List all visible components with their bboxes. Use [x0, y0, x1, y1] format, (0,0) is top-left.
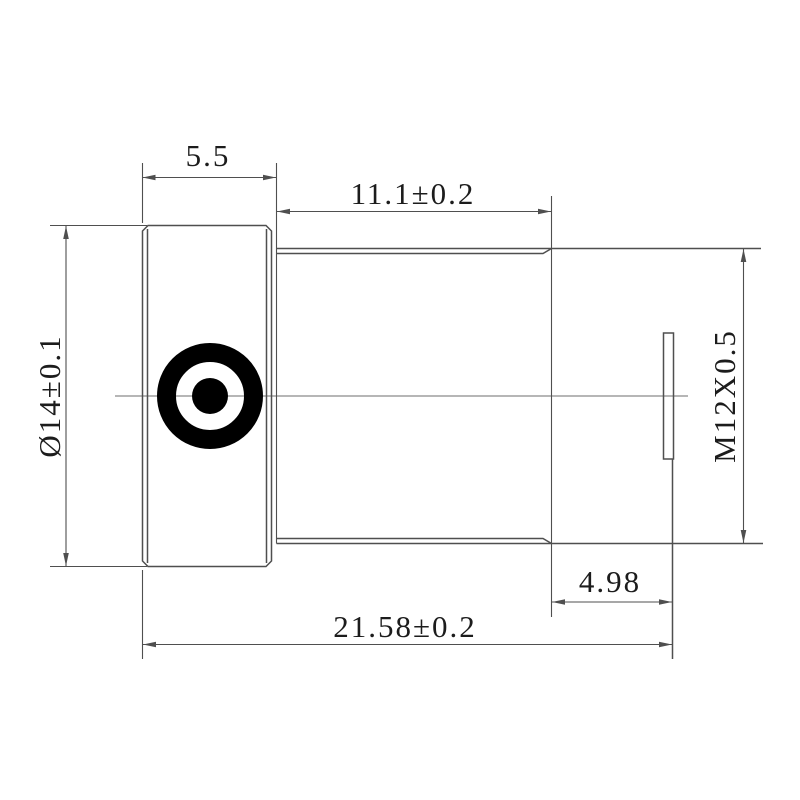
dim-label-barrel-length: 11.1±0.2	[351, 176, 476, 211]
dimension-labels-group: 5.5 11.1±0.2 Ø14±0.1 M12X0.5 4.98 21.58±…	[32, 138, 742, 644]
lens-center-dot	[192, 378, 228, 414]
dim-label-rear-length: 4.98	[579, 564, 641, 599]
lens-drawing-svg: 5.5 11.1±0.2 Ø14±0.1 M12X0.5 4.98 21.58±…	[0, 0, 800, 800]
dim-label-flange-width: 5.5	[186, 138, 231, 173]
dim-label-thread-spec: M12X0.5	[707, 329, 742, 463]
dim-label-flange-diameter: Ø14±0.1	[32, 334, 67, 457]
dim-label-total-length: 21.58±0.2	[333, 609, 477, 644]
technical-drawing-canvas: 5.5 11.1±0.2 Ø14±0.1 M12X0.5 4.98 21.58±…	[0, 0, 800, 800]
